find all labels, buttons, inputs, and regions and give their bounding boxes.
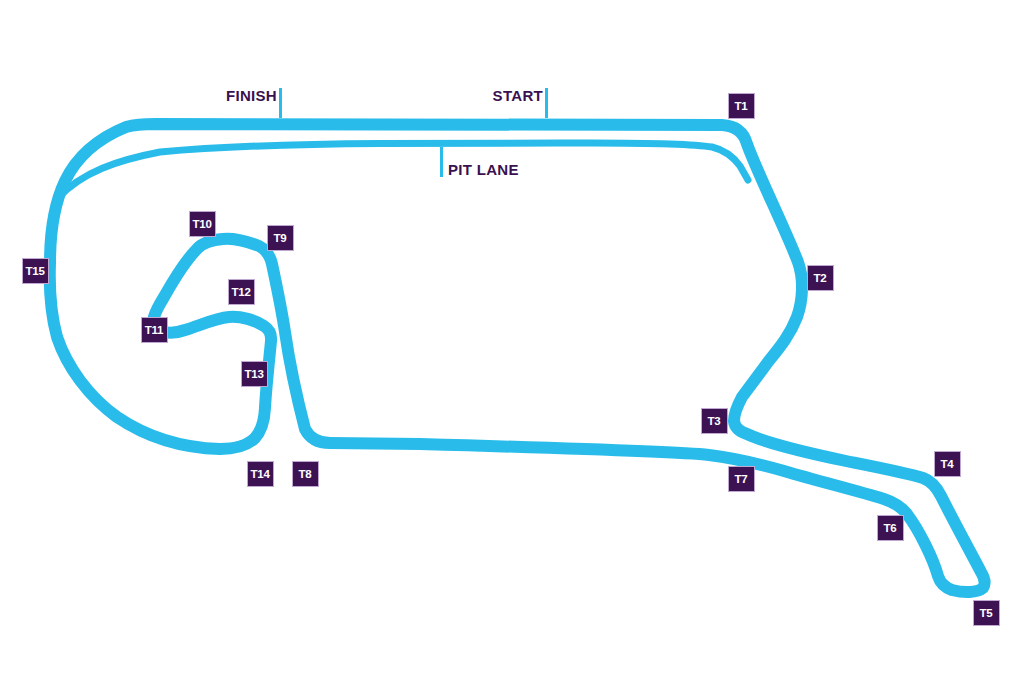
track-outline (50, 124, 985, 592)
turn-badge-t9: T9 (267, 225, 294, 251)
turn-badge-t13: T13 (241, 361, 268, 387)
pit-lane-line (58, 143, 748, 198)
circuit-map: FINISH START PIT LANE T1T2T3T4T5T6T7T8T9… (0, 0, 1024, 685)
start-label: START (443, 87, 543, 104)
turn-badge-t15: T15 (22, 258, 49, 284)
pit-lane-label: PIT LANE (448, 161, 519, 178)
turn-badge-t11: T11 (141, 317, 168, 343)
turn-badge-t2: T2 (807, 265, 834, 291)
turn-badge-t7: T7 (728, 466, 755, 492)
turn-badge-t12: T12 (228, 279, 255, 305)
turn-badge-t14: T14 (247, 461, 274, 487)
finish-label: FINISH (177, 87, 277, 104)
turn-badge-t8: T8 (292, 461, 319, 487)
turn-badge-t5: T5 (973, 600, 1000, 626)
turn-badge-t3: T3 (701, 408, 728, 434)
turn-badge-t6: T6 (877, 515, 904, 541)
turn-badge-t4: T4 (934, 451, 961, 477)
turn-badge-t10: T10 (189, 211, 216, 237)
turn-badge-t1: T1 (728, 93, 755, 119)
